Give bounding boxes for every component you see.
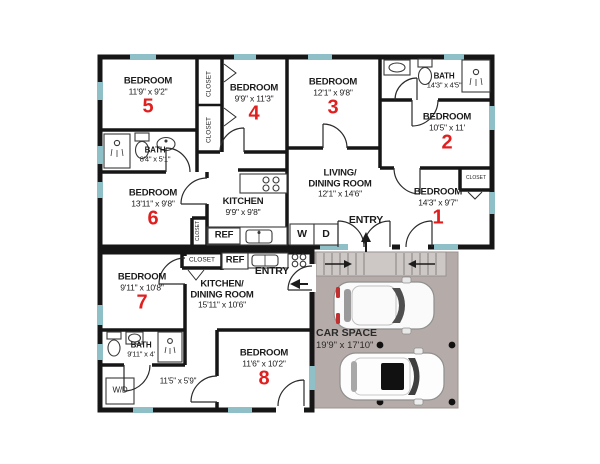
entry-label-lower: ENTRY [255, 266, 289, 278]
room-number: 6 [129, 209, 177, 230]
room-number: 3 [309, 98, 357, 119]
bedroom-8-label: BEDROOM 11'6" x 10'2" 8 [240, 348, 288, 389]
ref-label-upper: REF [215, 231, 233, 242]
room-number: 2 [423, 133, 471, 154]
closet-label: CLOSET [466, 176, 486, 182]
bedroom-6-label: BEDROOM 13'11" x 9'8" 6 [129, 188, 177, 229]
closet-label: CLOSET [196, 221, 202, 241]
stove-icon [240, 174, 287, 193]
closet-label: CLOSET [205, 117, 212, 143]
bedroom-7-label: BEDROOM 9'11" x 10'8" 7 [118, 272, 166, 313]
room-dims: 12'1" x 14'6" [308, 190, 371, 200]
sink-icon [384, 60, 410, 75]
bedroom-2-label: BEDROOM 10'5" x 11' 2 [423, 112, 471, 153]
bedroom-1-label: BEDROOM 14'3" x 9'7" 1 [414, 187, 462, 228]
floor-plan-image: BEDROOM 11'9" x 9'2" 5 BEDROOM 9'9" x 11… [0, 0, 600, 464]
stove-icon [292, 254, 306, 267]
shower-icon [104, 134, 130, 168]
room-dims: 19'9" x 17'10" [316, 340, 377, 352]
room-dims: 9'9" x 9'8" [223, 208, 264, 218]
room-number: 7 [118, 293, 166, 314]
hall-dimensions-label: 11'5" x 5'9" [160, 378, 196, 387]
room-dims: 14'3" x 4'5" [427, 81, 462, 89]
bath-top-label: BATH 14'3" x 4'5" [427, 72, 462, 89]
bedroom-4-label: BEDROOM 9'9" x 11'3" 4 [230, 83, 278, 124]
car-space-label: CAR SPACE 19'9" x 17'10" [316, 327, 377, 352]
toilet-icon [107, 332, 121, 356]
room-name: CAR SPACE [316, 327, 377, 340]
room-dims: 8'4" x 5'1" [140, 155, 171, 163]
kitchen-label: KITCHEN 9'9" x 9'8" [223, 197, 264, 217]
bedroom-3-label: BEDROOM 12'1" x 9'8" 3 [309, 77, 357, 118]
room-dims: 15'11" x 10'6" [190, 301, 253, 311]
room-number: 1 [414, 208, 462, 229]
closet-label: CLOSET [205, 71, 212, 97]
car-2-top-view-icon [340, 348, 444, 405]
closet-label: CLOSET [189, 256, 215, 263]
washer-label: W [297, 229, 307, 241]
stairs [316, 252, 446, 276]
entry-label-upper: ENTRY [349, 215, 383, 227]
car-1-top-view-icon [334, 277, 434, 334]
room-dims: 9'11" x 4' [127, 350, 155, 358]
room-number: 5 [124, 97, 172, 118]
dryer-label: D [322, 229, 329, 241]
shower-icon [462, 60, 490, 92]
living-dining-label: LIVING/ DINING ROOM 12'1" x 14'6" [308, 169, 371, 200]
room-number: 8 [240, 369, 288, 390]
washer-dryer-label: W/D [113, 387, 128, 396]
bedroom-5-label: BEDROOM 11'9" x 9'2" 5 [124, 76, 172, 117]
bath-left-label: BATH 8'4" x 5'1" [140, 146, 171, 163]
room-number: 4 [230, 104, 278, 125]
shower-icon [158, 332, 182, 362]
kitchen-dining-label: KITCHEN/ DINING ROOM 15'11" x 10'6" [190, 280, 253, 311]
bath-lower-label: BATH 9'11" x 4' [127, 341, 155, 358]
ref-label-lower: REF [226, 256, 244, 267]
